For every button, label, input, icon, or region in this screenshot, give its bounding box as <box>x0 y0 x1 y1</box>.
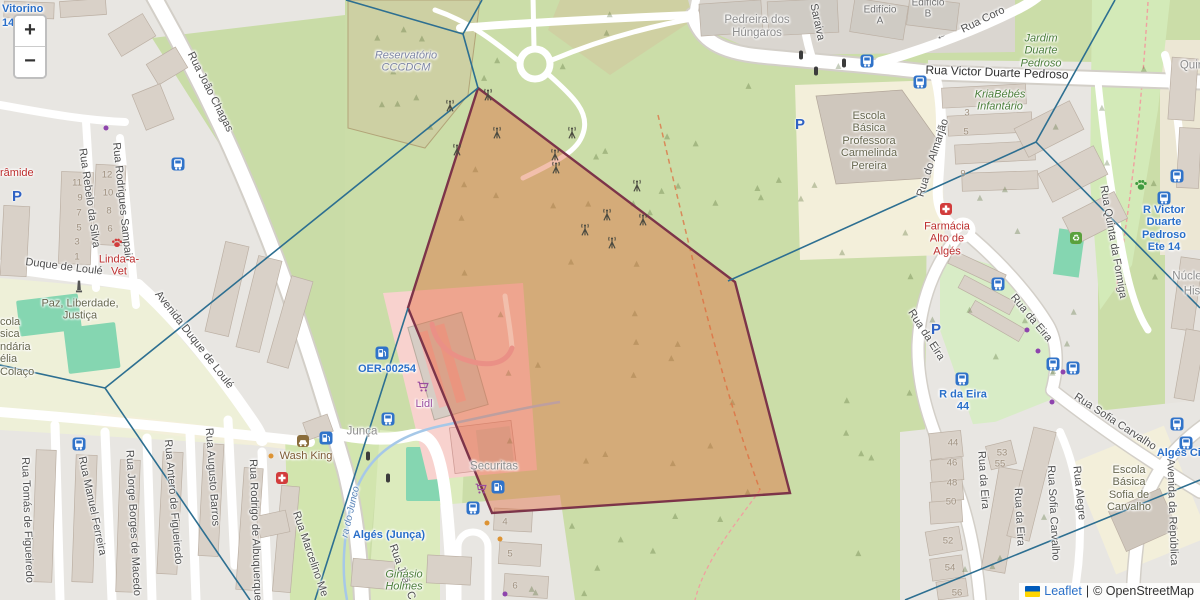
zoom-control: + − <box>13 14 47 79</box>
attribution-separator: | <box>1086 584 1089 598</box>
openstreetmap-link[interactable]: © OpenStreetMap <box>1093 584 1194 598</box>
zoom-in-button[interactable]: + <box>15 16 45 47</box>
zoom-out-button[interactable]: − <box>15 47 45 77</box>
leaflet-link[interactable]: Leaflet <box>1044 584 1082 598</box>
map[interactable]: Rua João ChagasDuque de LouléAvenida Duq… <box>0 0 1200 600</box>
ukraine-flag-icon <box>1025 586 1040 597</box>
map-base-tiles <box>0 0 1200 600</box>
attribution-bar: Leaflet | © OpenStreetMap <box>1019 583 1200 600</box>
